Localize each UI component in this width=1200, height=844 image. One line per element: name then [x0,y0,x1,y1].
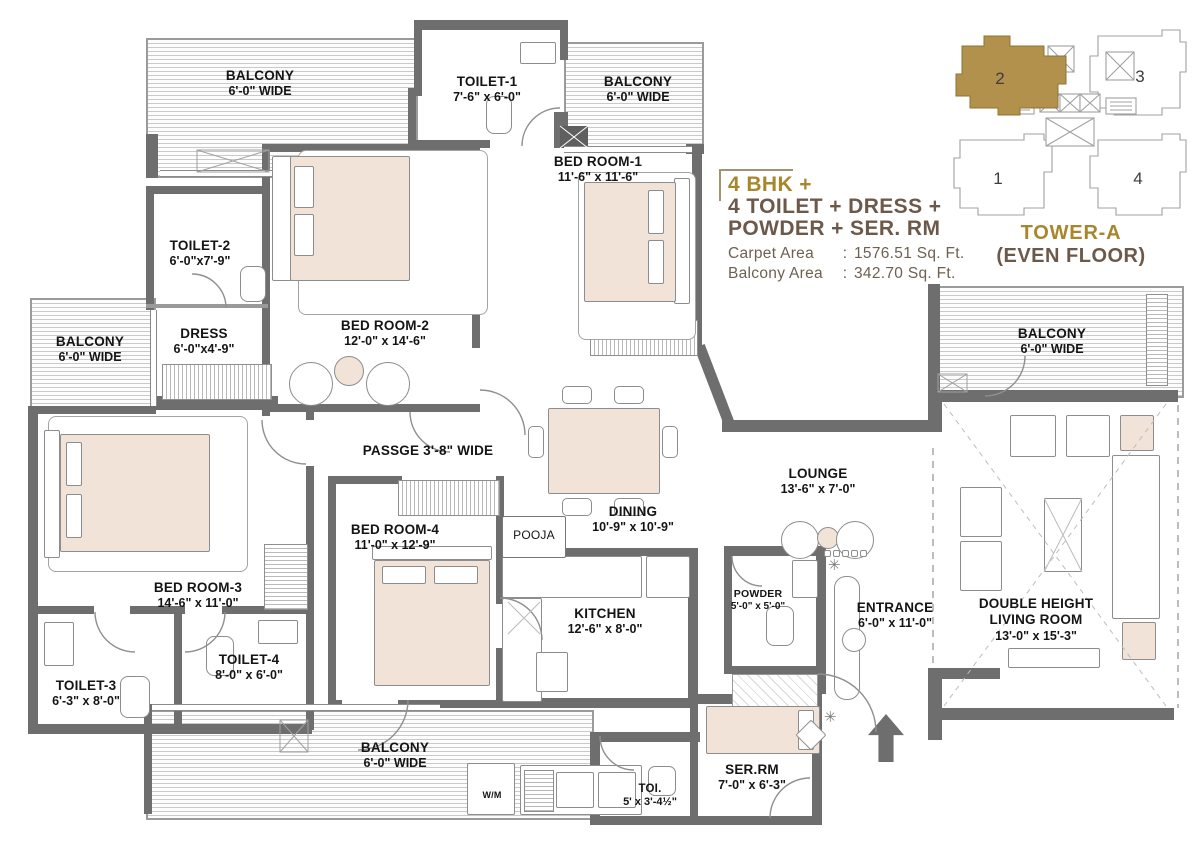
keyplan-unit-1 [954,134,1052,215]
keyplan-unit2-number: 2 [995,69,1004,88]
room-label-dining: DINING10'-9" x 10'-9" [592,504,674,536]
room-label-bedroom-4: BED ROOM-411'-0" x 12'-9" [351,522,439,554]
room-label-bedroom-2: BED ROOM-212'-0" x 14'-6" [341,318,429,350]
keyplan-unit3-number: 3 [1135,67,1144,86]
room-label-lounge: LOUNGE13'-6" x 7'-0" [781,466,856,498]
tower-name: TOWER-A [950,222,1192,245]
room-label-toilet-3: TOILET-36'-3" x 8'-0" [52,678,120,710]
balcony-area-row: Balcony Area : 342.70 Sq. Ft. [728,265,965,283]
title-block: 4 BHK + 4 TOILET + DRESS + POWDER + SER.… [728,174,965,283]
tower-key-plan: 2 3 1 4 [948,22,1192,222]
keyplan-unit1-number: 1 [993,169,1002,188]
room-label-dress: DRESS6'-0"x4'-9" [174,326,235,358]
room-label-balcony-left: BALCONY6'-0" WIDE [56,334,124,366]
plant-icon: ✳ [824,708,837,726]
room-label-balcony-top-right: BALCONY6'-0" WIDE [604,74,672,106]
room-label-bedroom-1: BED ROOM-111'-6" x 11'-6" [554,154,642,186]
carpet-area-row: Carpet Area : 1576.51 Sq. Ft. [728,245,965,263]
tower-floor: (EVEN FLOOR) [950,245,1192,268]
room-label-powder: POWDER5'-0" x 5'-0" [731,588,785,613]
room-label-bedroom-3: BED ROOM-314'-6" x 11'-0" [154,580,242,612]
plan-title-line1: 4 BHK + [728,174,965,196]
plan-title-line2: 4 TOILET + DRESS + [728,196,965,218]
room-label-balcony-bottom: BALCONY6'-0" WIDE [361,740,429,772]
room-label-kitchen: KITCHEN12'-6" x 8'-0" [568,606,643,638]
room-label-living-room: DOUBLE HEIGHTLIVING ROOM13'-0" x 15'-3" [979,596,1093,644]
plant-icon: ✳ [828,556,841,574]
room-label-toilet-4: TOILET-48'-0" x 6'-0" [215,652,283,684]
room-label-passage: PASSGE 3'-8" WIDE [363,443,494,459]
floor-plan: ✳ ✳ BALCONY6'-0" WIDE TOILET-17'-6" x 6'… [0,0,1200,844]
keyplan-unit4-number: 4 [1133,169,1142,188]
room-label-toi: TOI.5' x 3'-4½" [623,782,677,809]
plan-title-line3: POWDER + SER. RM [728,218,965,240]
room-label-pooja: POOJA [513,528,555,543]
room-label-entrance: ENTRANCE6'-0" x 11'-0" [857,600,934,632]
room-label-balcony-top-left: BALCONY6'-0" WIDE [226,68,294,100]
room-label-balcony-right: BALCONY6'-0" WIDE [1018,326,1086,358]
room-label-wm: W/M [482,790,501,801]
tower-title: TOWER-A (EVEN FLOOR) [950,222,1192,268]
room-label-toilet-1: TOILET-17'-6" x 6'-0" [453,74,521,106]
room-label-serrm: SER.RM7'-0" x 6'-3" [718,762,786,794]
room-label-toilet-2: TOILET-26'-0"x7'-9" [170,238,231,270]
